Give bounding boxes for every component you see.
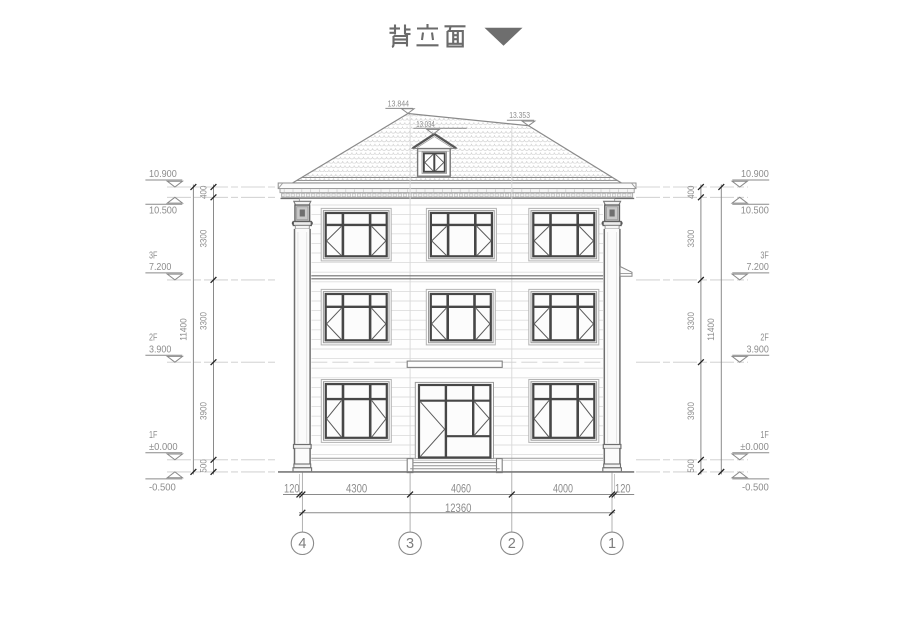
svg-text:7.200: 7.200	[149, 262, 172, 273]
svg-text:-0.500: -0.500	[149, 482, 176, 493]
svg-text:3: 3	[406, 536, 414, 552]
svg-text:±0.000: ±0.000	[149, 442, 178, 453]
svg-text:7.200: 7.200	[747, 262, 770, 273]
svg-text:2: 2	[508, 536, 516, 552]
svg-text:10.900: 10.900	[149, 169, 177, 180]
svg-text:10.500: 10.500	[741, 205, 769, 216]
svg-text:3300: 3300	[199, 230, 209, 248]
svg-text:10.900: 10.900	[741, 169, 769, 180]
svg-text:1: 1	[608, 536, 616, 552]
svg-text:3300: 3300	[686, 230, 696, 248]
svg-text:13.353: 13.353	[509, 110, 530, 120]
svg-text:4300: 4300	[346, 482, 368, 495]
svg-text:13.034: 13.034	[416, 119, 435, 129]
svg-text:3300: 3300	[686, 312, 696, 330]
svg-text:3900: 3900	[686, 402, 696, 420]
svg-text:1F: 1F	[149, 430, 157, 441]
svg-text:500: 500	[686, 459, 696, 472]
svg-text:500: 500	[199, 459, 209, 472]
svg-text:11400: 11400	[179, 318, 189, 340]
svg-text:3300: 3300	[199, 312, 209, 330]
svg-text:120: 120	[284, 482, 300, 495]
svg-text:3F: 3F	[149, 250, 157, 261]
svg-text:120: 120	[615, 482, 631, 495]
svg-text:11400: 11400	[706, 318, 716, 340]
svg-text:3900: 3900	[199, 402, 209, 420]
svg-text:400: 400	[686, 185, 696, 198]
svg-text:2F: 2F	[760, 333, 768, 344]
svg-text:3.900: 3.900	[747, 344, 770, 355]
svg-text:10.500: 10.500	[149, 205, 177, 216]
svg-text:12360: 12360	[445, 502, 472, 515]
svg-text:3.900: 3.900	[149, 344, 172, 355]
svg-text:2F: 2F	[149, 333, 157, 344]
svg-text:4060: 4060	[451, 482, 471, 495]
svg-text:4000: 4000	[553, 482, 573, 495]
svg-text:3F: 3F	[760, 250, 768, 261]
svg-text:13.844: 13.844	[388, 99, 410, 109]
svg-text:±0.000: ±0.000	[740, 442, 769, 453]
svg-text:1F: 1F	[760, 430, 768, 441]
svg-text:-0.500: -0.500	[742, 482, 769, 493]
svg-text:400: 400	[199, 186, 209, 199]
svg-text:4: 4	[298, 536, 306, 552]
